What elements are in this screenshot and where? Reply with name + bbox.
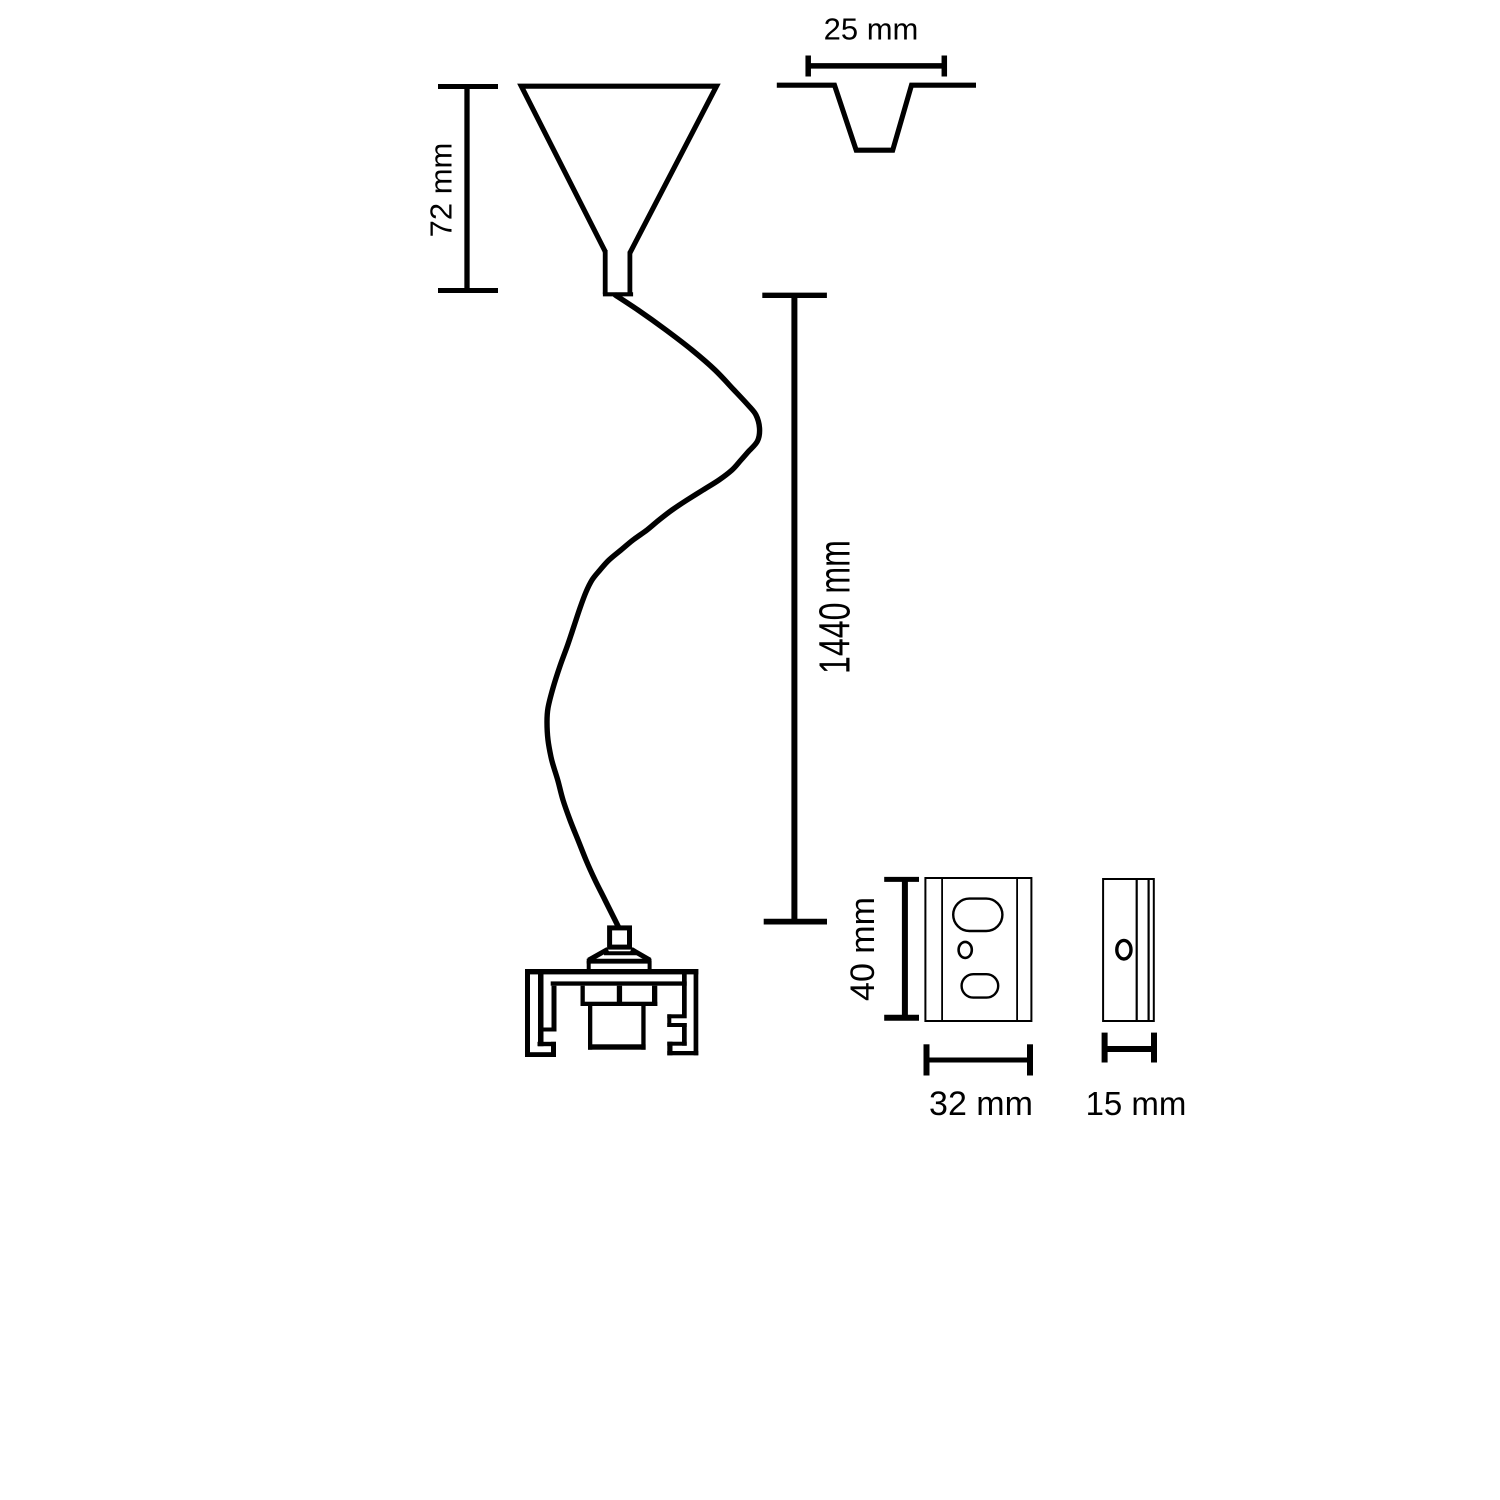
svg-text:1440 mm: 1440 mm [811, 540, 860, 674]
svg-text:25 mm: 25 mm [824, 12, 919, 47]
svg-text:40 mm: 40 mm [844, 897, 882, 1001]
svg-text:72 mm: 72 mm [424, 143, 459, 238]
svg-text:15 mm: 15 mm [1086, 1085, 1187, 1122]
svg-text:32 mm: 32 mm [929, 1085, 1033, 1123]
